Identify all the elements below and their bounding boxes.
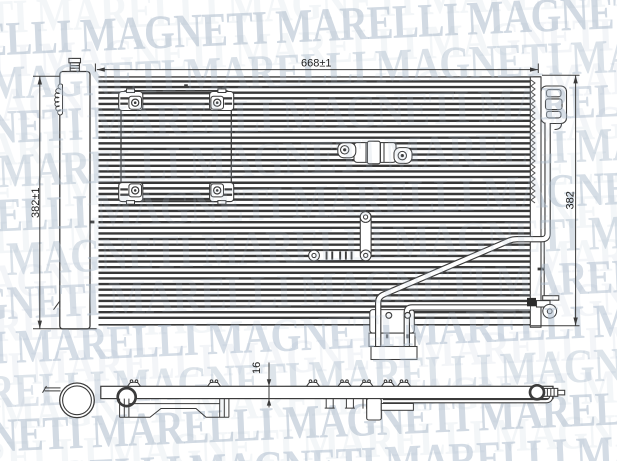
svg-text:382: 382 [565, 191, 577, 209]
svg-text:16: 16 [251, 362, 263, 374]
svg-text:668±1: 668±1 [301, 57, 332, 69]
svg-text:382±1: 382±1 [30, 187, 42, 218]
